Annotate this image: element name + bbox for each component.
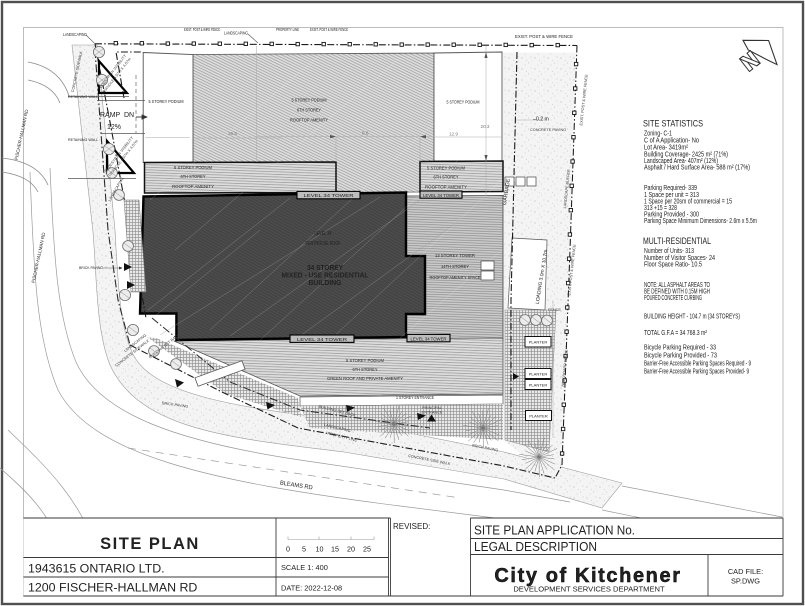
svg-text:1200 FISCHER-HALLMAN RD: 1200 FISCHER-HALLMAN RD xyxy=(28,581,197,595)
svg-text:PLANTER: PLANTER xyxy=(529,383,548,388)
svg-text:5 STOREY PODIUM: 5 STOREY PODIUM xyxy=(174,165,212,170)
svg-text:–0.2 m: –0.2 m xyxy=(533,117,549,123)
svg-text:EXIST. POST & WIRE FENCE: EXIST. POST & WIRE FENCE xyxy=(310,27,348,32)
svg-text:RAMP: RAMP xyxy=(100,112,121,119)
svg-text:5 STOREY PODIUM: 5 STOREY PODIUM xyxy=(346,358,384,363)
svg-text:1943615 ONTARIO LTD.: 1943615 ONTARIO LTD. xyxy=(28,562,165,576)
svg-text:BUILDING HEIGHT - 104.7 m (34: BUILDING HEIGHT - 104.7 m (34 STOREYS) xyxy=(644,312,740,321)
svg-text:TOTAL G.F.A = 34 768.3 m²: TOTAL G.F.A = 34 768.3 m² xyxy=(644,328,707,337)
svg-text:PROPERTY LINE: PROPERTY LINE xyxy=(276,27,299,32)
svg-text:9.8: 9.8 xyxy=(362,131,369,136)
svg-text:6TH STOREY: 6TH STOREY xyxy=(297,108,322,114)
svg-text:LEVEL 34 TOWER: LEVEL 34 TOWER xyxy=(423,193,459,198)
svg-text:LEVEL 34: LEVEL 34 xyxy=(315,231,332,237)
svg-text:5 STOREY PODIUM: 5 STOREY PODIUM xyxy=(149,99,184,105)
svg-text:ENTRANCE: ENTRANCE xyxy=(422,411,443,415)
svg-text:EXIST. POST & WIRE FENCE: EXIST. POST & WIRE FENCE xyxy=(184,27,220,32)
svg-text:ROOFTOP AMENITY: ROOFTOP AMENITY xyxy=(425,185,467,190)
svg-text:BRICK PAVING: BRICK PAVING xyxy=(79,266,103,270)
svg-text:DATE: 2022-12-08: DATE: 2022-12-08 xyxy=(281,584,342,593)
svg-text:ROOFTOP AMENITY: ROOFTOP AMENITY xyxy=(290,118,329,124)
svg-text:BUILDING: BUILDING xyxy=(309,278,342,287)
svg-text:DEVELOPMENT SERVICES DEPARTMEN: DEVELOPMENT SERVICES DEPARTMENT xyxy=(513,585,665,594)
svg-text:LEVEL 34 TOWER: LEVEL 34 TOWER xyxy=(304,193,354,198)
svg-text:SP.DWG: SP.DWG xyxy=(731,577,760,586)
svg-text:6TH STOREY: 6TH STOREY xyxy=(181,174,206,179)
svg-text:13 STOREY TOWER: 13 STOREY TOWER xyxy=(435,253,475,258)
svg-text:LEGAL DESCRIPTION: LEGAL DESCRIPTION xyxy=(474,539,597,554)
svg-text:ROOFTOP AMENITY: ROOFTOP AMENITY xyxy=(172,184,214,189)
svg-text:GREEN ROOF AND PRIVATE AMENITY: GREEN ROOF AND PRIVATE AMENITY xyxy=(327,376,403,381)
svg-text:LEVEL 34 TOWER: LEVEL 34 TOWER xyxy=(297,337,347,342)
svg-text:REVISED:: REVISED: xyxy=(393,522,430,531)
svg-text:1 STOREY ENTRANCE: 1 STOREY ENTRANCE xyxy=(396,395,434,400)
svg-text:Parking Space Minimum Dimensio: Parking Space Minimum Dimensions- 2.6m x… xyxy=(644,216,757,225)
svg-text:DN: DN xyxy=(124,112,134,119)
svg-text:SITE STATISTICS: SITE STATISTICS xyxy=(643,119,703,129)
svg-text:5 STOREY PODIUM: 5 STOREY PODIUM xyxy=(427,166,465,171)
svg-text:25: 25 xyxy=(363,545,371,554)
svg-text:SCALE 1: 400: SCALE 1: 400 xyxy=(281,563,328,572)
svg-text:RETAINING WALL: RETAINING WALL xyxy=(68,138,98,142)
svg-text:26.5: 26.5 xyxy=(228,131,237,136)
svg-text:12%: 12% xyxy=(107,124,121,131)
svg-text:6TH STOREY: 6TH STOREY xyxy=(353,367,378,372)
svg-text:15: 15 xyxy=(331,545,339,554)
svg-text:20: 20 xyxy=(347,545,355,554)
svg-text:FENCE: FENCE xyxy=(548,308,561,312)
svg-text:0: 0 xyxy=(286,545,290,554)
svg-text:PLANTER: PLANTER xyxy=(529,340,548,345)
svg-text:12.9: 12.9 xyxy=(449,132,458,137)
svg-text:Floor Space Ratio- 10.5: Floor Space Ratio- 10.5 xyxy=(644,260,702,269)
svg-text:LANDSCAPING: LANDSCAPING xyxy=(224,31,248,36)
svg-text:CAD FILE:: CAD FILE: xyxy=(728,567,763,576)
svg-text:LANDSCAPING: LANDSCAPING xyxy=(63,32,87,37)
svg-text:POURED CONCRETE CURBING: POURED CONCRETE CURBING xyxy=(644,293,702,302)
svg-text:5 STOREY PODIUM: 5 STOREY PODIUM xyxy=(292,98,327,104)
svg-text:RETAINING WALL: RETAINING WALL xyxy=(68,95,98,99)
svg-text:5 STOREY PODIUM: 5 STOREY PODIUM xyxy=(447,100,480,106)
svg-text:ROOFTOP AMENITY SPACE: ROOFTOP AMENITY SPACE xyxy=(430,275,481,280)
svg-text:PLANTER: PLANTER xyxy=(529,414,548,419)
svg-text:20.3: 20.3 xyxy=(481,124,490,129)
svg-text:10: 10 xyxy=(316,545,324,554)
svg-text:6TH STOREY: 6TH STOREY xyxy=(434,175,459,180)
svg-text:LEVEL 34 TOWER: LEVEL 34 TOWER xyxy=(411,336,447,341)
svg-text:Asphalt / Hard Surface Area-: Asphalt / Hard Surface Area- 588 m² (17%… xyxy=(644,163,750,172)
svg-text:SITE PLAN: SITE PLAN xyxy=(100,535,200,553)
svg-text:Barrier-Free Accessible Parkin: Barrier-Free Accessible Parking Spaces P… xyxy=(644,367,749,376)
svg-text:14TH STOREY: 14TH STOREY xyxy=(441,264,469,269)
svg-text:PENTHOUSE ROOF: PENTHOUSE ROOF xyxy=(306,241,341,247)
svg-text:SITE PLAN APPLICATION No.: SITE PLAN APPLICATION No. xyxy=(474,523,635,538)
svg-text:PRINCIPAL: PRINCIPAL xyxy=(422,406,442,410)
svg-text:CONCRETE PAVING: CONCRETE PAVING xyxy=(530,128,566,132)
svg-text:PLANTER: PLANTER xyxy=(529,372,548,377)
svg-text:5: 5 xyxy=(302,545,306,554)
svg-text:EXIST. POST & WIRE FENCE: EXIST. POST & WIRE FENCE xyxy=(515,34,573,40)
svg-text:MULTI-RESIDENTIAL: MULTI-RESIDENTIAL xyxy=(643,236,711,246)
